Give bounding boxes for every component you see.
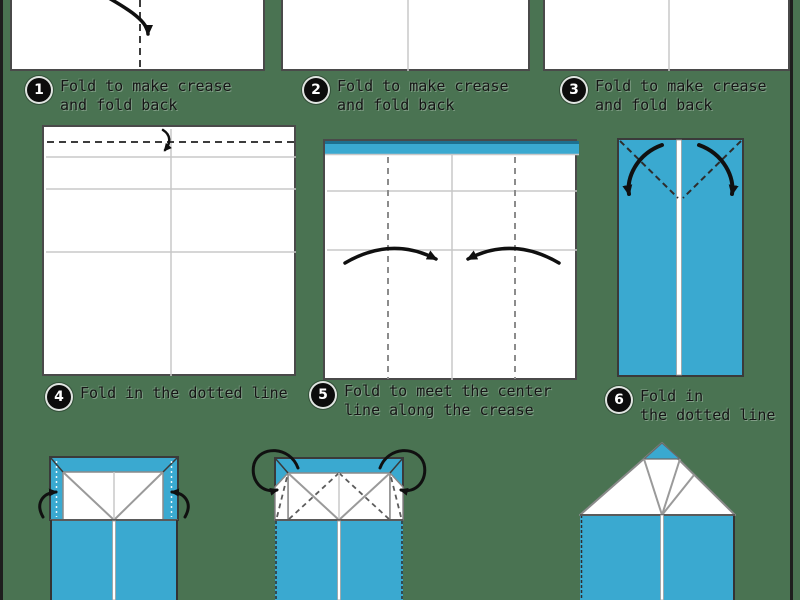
step5-diagram xyxy=(323,139,577,380)
step4-caption: 4 Fold in the dotted line xyxy=(47,384,288,409)
step2-number-badge: 2 xyxy=(304,78,328,102)
step2-paper xyxy=(283,0,532,71)
step3-number-badge: 3 xyxy=(562,78,586,102)
step4-paper xyxy=(44,127,298,378)
step3-caption-text: Fold to make creaseand fold back xyxy=(595,77,767,115)
step8-diagram xyxy=(240,440,440,600)
center-crease xyxy=(661,515,664,600)
step2-caption: 2 Fold to make creaseand fold back xyxy=(304,77,509,115)
step2-caption-text: Fold to make creaseand fold back xyxy=(337,77,509,115)
step3-caption: 3 Fold to make creaseand fold back xyxy=(562,77,767,115)
step4-diagram xyxy=(42,125,296,376)
page-border-left xyxy=(0,0,3,600)
step1-diagram xyxy=(10,0,265,71)
origami-instructions-page: 1 Fold to make creaseand fold back 2 Fol… xyxy=(0,0,800,600)
step4-number-badge: 4 xyxy=(47,385,71,409)
step6-caption-text: Fold inthe dotted line xyxy=(640,387,775,425)
step5-caption: 5 Fold to meet the centerline along the … xyxy=(311,382,552,420)
step6-number-badge: 6 xyxy=(607,388,631,412)
step2-diagram xyxy=(281,0,530,71)
page-border-right xyxy=(790,0,793,600)
step6-diagram xyxy=(617,138,744,377)
step5-paper xyxy=(325,141,579,382)
step3-paper xyxy=(545,0,792,71)
step1-caption: 1 Fold to make creaseand fold back xyxy=(27,77,232,115)
center-crease xyxy=(677,140,682,375)
step4-caption-text: Fold in the dotted line xyxy=(80,384,288,403)
center-crease xyxy=(338,521,341,600)
pencil-lead xyxy=(644,443,680,459)
step5-number-badge: 5 xyxy=(311,383,335,407)
center-crease xyxy=(113,521,116,600)
step6-caption: 6 Fold inthe dotted line xyxy=(607,387,775,425)
fold-back-arrow-icon xyxy=(163,130,169,150)
step1-paper xyxy=(12,0,267,71)
pencil-body xyxy=(580,515,735,600)
step3-diagram xyxy=(543,0,790,71)
step7-diagram xyxy=(30,440,230,600)
step5-caption-text: Fold to meet the centerline along the cr… xyxy=(344,382,552,420)
fold-arrow-icon xyxy=(107,0,148,34)
step9-diagram xyxy=(540,430,770,600)
step1-number-badge: 1 xyxy=(27,78,51,102)
step1-caption-text: Fold to make creaseand fold back xyxy=(60,77,232,115)
unfolded-pocket xyxy=(63,472,163,520)
